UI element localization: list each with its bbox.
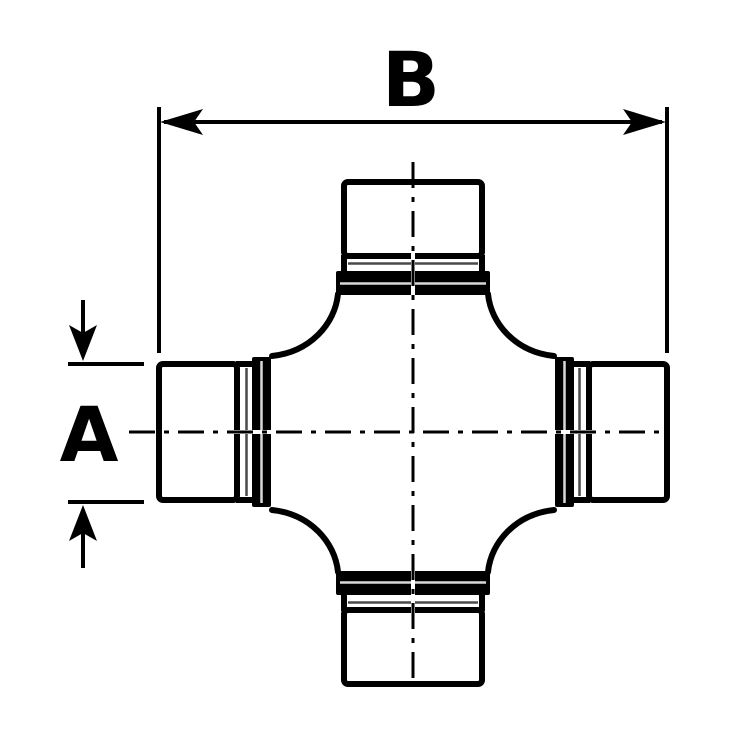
dim-b-label: B [382,35,440,124]
bearing-cap-left [159,357,278,507]
ujoint-cross-diagram: B A [0,0,754,754]
fillet-bottom-right [488,510,554,572]
dim-a-label: A [60,390,119,479]
fillet-top-right [488,294,554,356]
dimension-a: A [60,300,144,568]
drawing-canvas: B A [0,0,754,754]
fillet-top-left [272,294,338,356]
fillet-bottom-left [272,510,338,572]
